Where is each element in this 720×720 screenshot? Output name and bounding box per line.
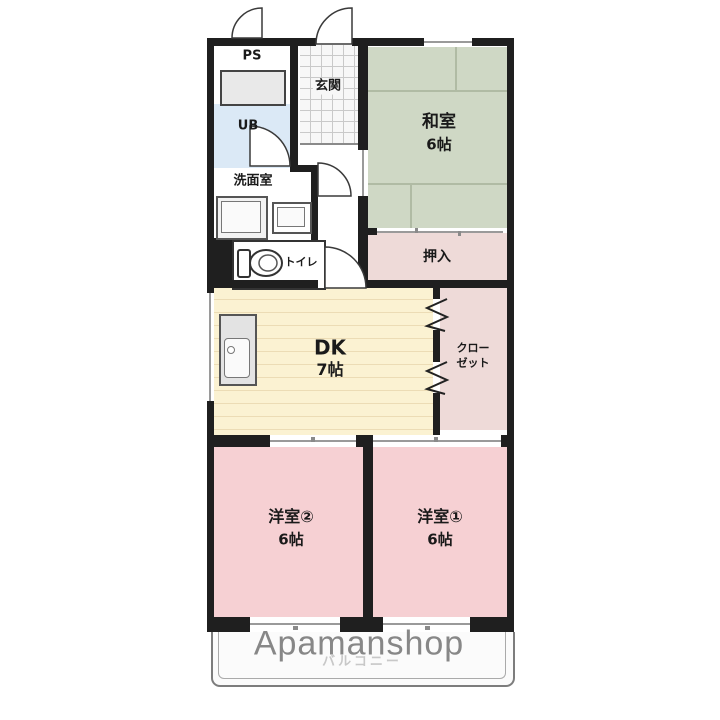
label-ps: PS [243, 50, 262, 65]
label-japanese-room: 和室 [422, 113, 456, 133]
label-japanese-room-size: 6帖 [426, 136, 451, 153]
label-entrance: 玄関 [313, 80, 343, 95]
ps-door-arc [232, 8, 262, 38]
toilet-door-arc [325, 247, 366, 288]
toilet-tank-icon [238, 250, 250, 277]
washroom-door-arc [318, 163, 351, 196]
label-western-room-2-size: 6帖 [278, 531, 303, 548]
label-toilet: トイレ [285, 257, 318, 270]
entrance-door-arc [316, 8, 352, 44]
floor-plan: バルコニー Apamanshop PS UB 洗面室 トイレ 玄関 和室 6帖 … [0, 0, 720, 720]
label-washroom: 洗面室 [233, 175, 272, 190]
watermark-apamanshop: Apamanshop [254, 625, 464, 664]
folding-door-zigzag [427, 299, 447, 331]
label-western-room-2: 洋室② [268, 508, 314, 526]
label-western-room-1: 洋室① [417, 508, 463, 526]
label-closet-line2: ゼット [457, 358, 490, 371]
label-ub: UB [238, 120, 258, 135]
label-dk-size: 7帖 [316, 361, 343, 379]
label-dk: DK [314, 337, 346, 360]
folding-door-zigzag [427, 362, 447, 394]
label-closet-line1: クロー [457, 343, 490, 356]
door-symbols-layer [0, 0, 720, 720]
label-western-room-1-size: 6帖 [427, 531, 452, 548]
label-oshiire: 押入 [423, 249, 451, 265]
